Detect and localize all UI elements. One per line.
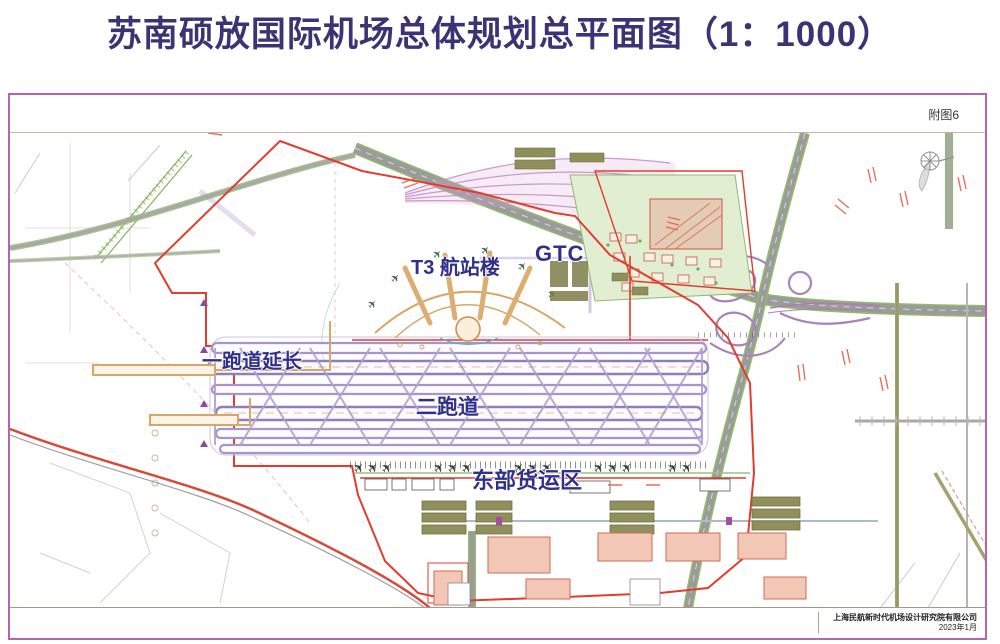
label-runway-extension: 一跑道延长 (202, 345, 302, 374)
green-development-zone (570, 175, 752, 301)
label-t3-terminal: T3 航站楼 (411, 251, 500, 280)
master-plan-drawing: ✈ ✈ ✈ ✈ ✈ ✈ ✈ ✈ ✈ ✈ ✈ ✈ ✈ ✈ (10, 133, 985, 608)
svg-text:✈: ✈ (365, 297, 380, 312)
airfield: ✈ ✈ ✈ ✈ ✈ ✈ ✈ ✈ ✈ ✈ ✈ ✈ ✈ ✈ (93, 299, 800, 477)
svg-text:✈: ✈ (388, 271, 403, 286)
svg-text:✈: ✈ (618, 459, 636, 477)
label-east-cargo: 东部货运区 (472, 463, 582, 495)
title-block-strip: 上海民航新时代机场设计研究院有限公司 2023年1月 (10, 607, 985, 638)
svg-text:✈: ✈ (678, 459, 696, 477)
figure-number: 附图6 (928, 106, 959, 123)
page-title: 苏南硕放国际机场总体规划总平面图（1：1000） (0, 6, 1000, 57)
label-second-runway: 二跑道 (416, 391, 479, 421)
plan-date: 2023年1月 (833, 623, 977, 633)
gtc-blocks (550, 261, 588, 301)
warehouse-rows (422, 497, 800, 534)
design-company: 上海民航新时代机场设计研究院有限公司 (833, 612, 977, 623)
svg-text:✈: ✈ (378, 459, 396, 477)
label-gtc: GTC (535, 241, 584, 267)
title-block: 上海民航新时代机场设计研究院有限公司 2023年1月 (818, 612, 977, 633)
sheet-header: 附图6 (10, 95, 985, 133)
plan-sheet: 附图6 (8, 93, 987, 640)
